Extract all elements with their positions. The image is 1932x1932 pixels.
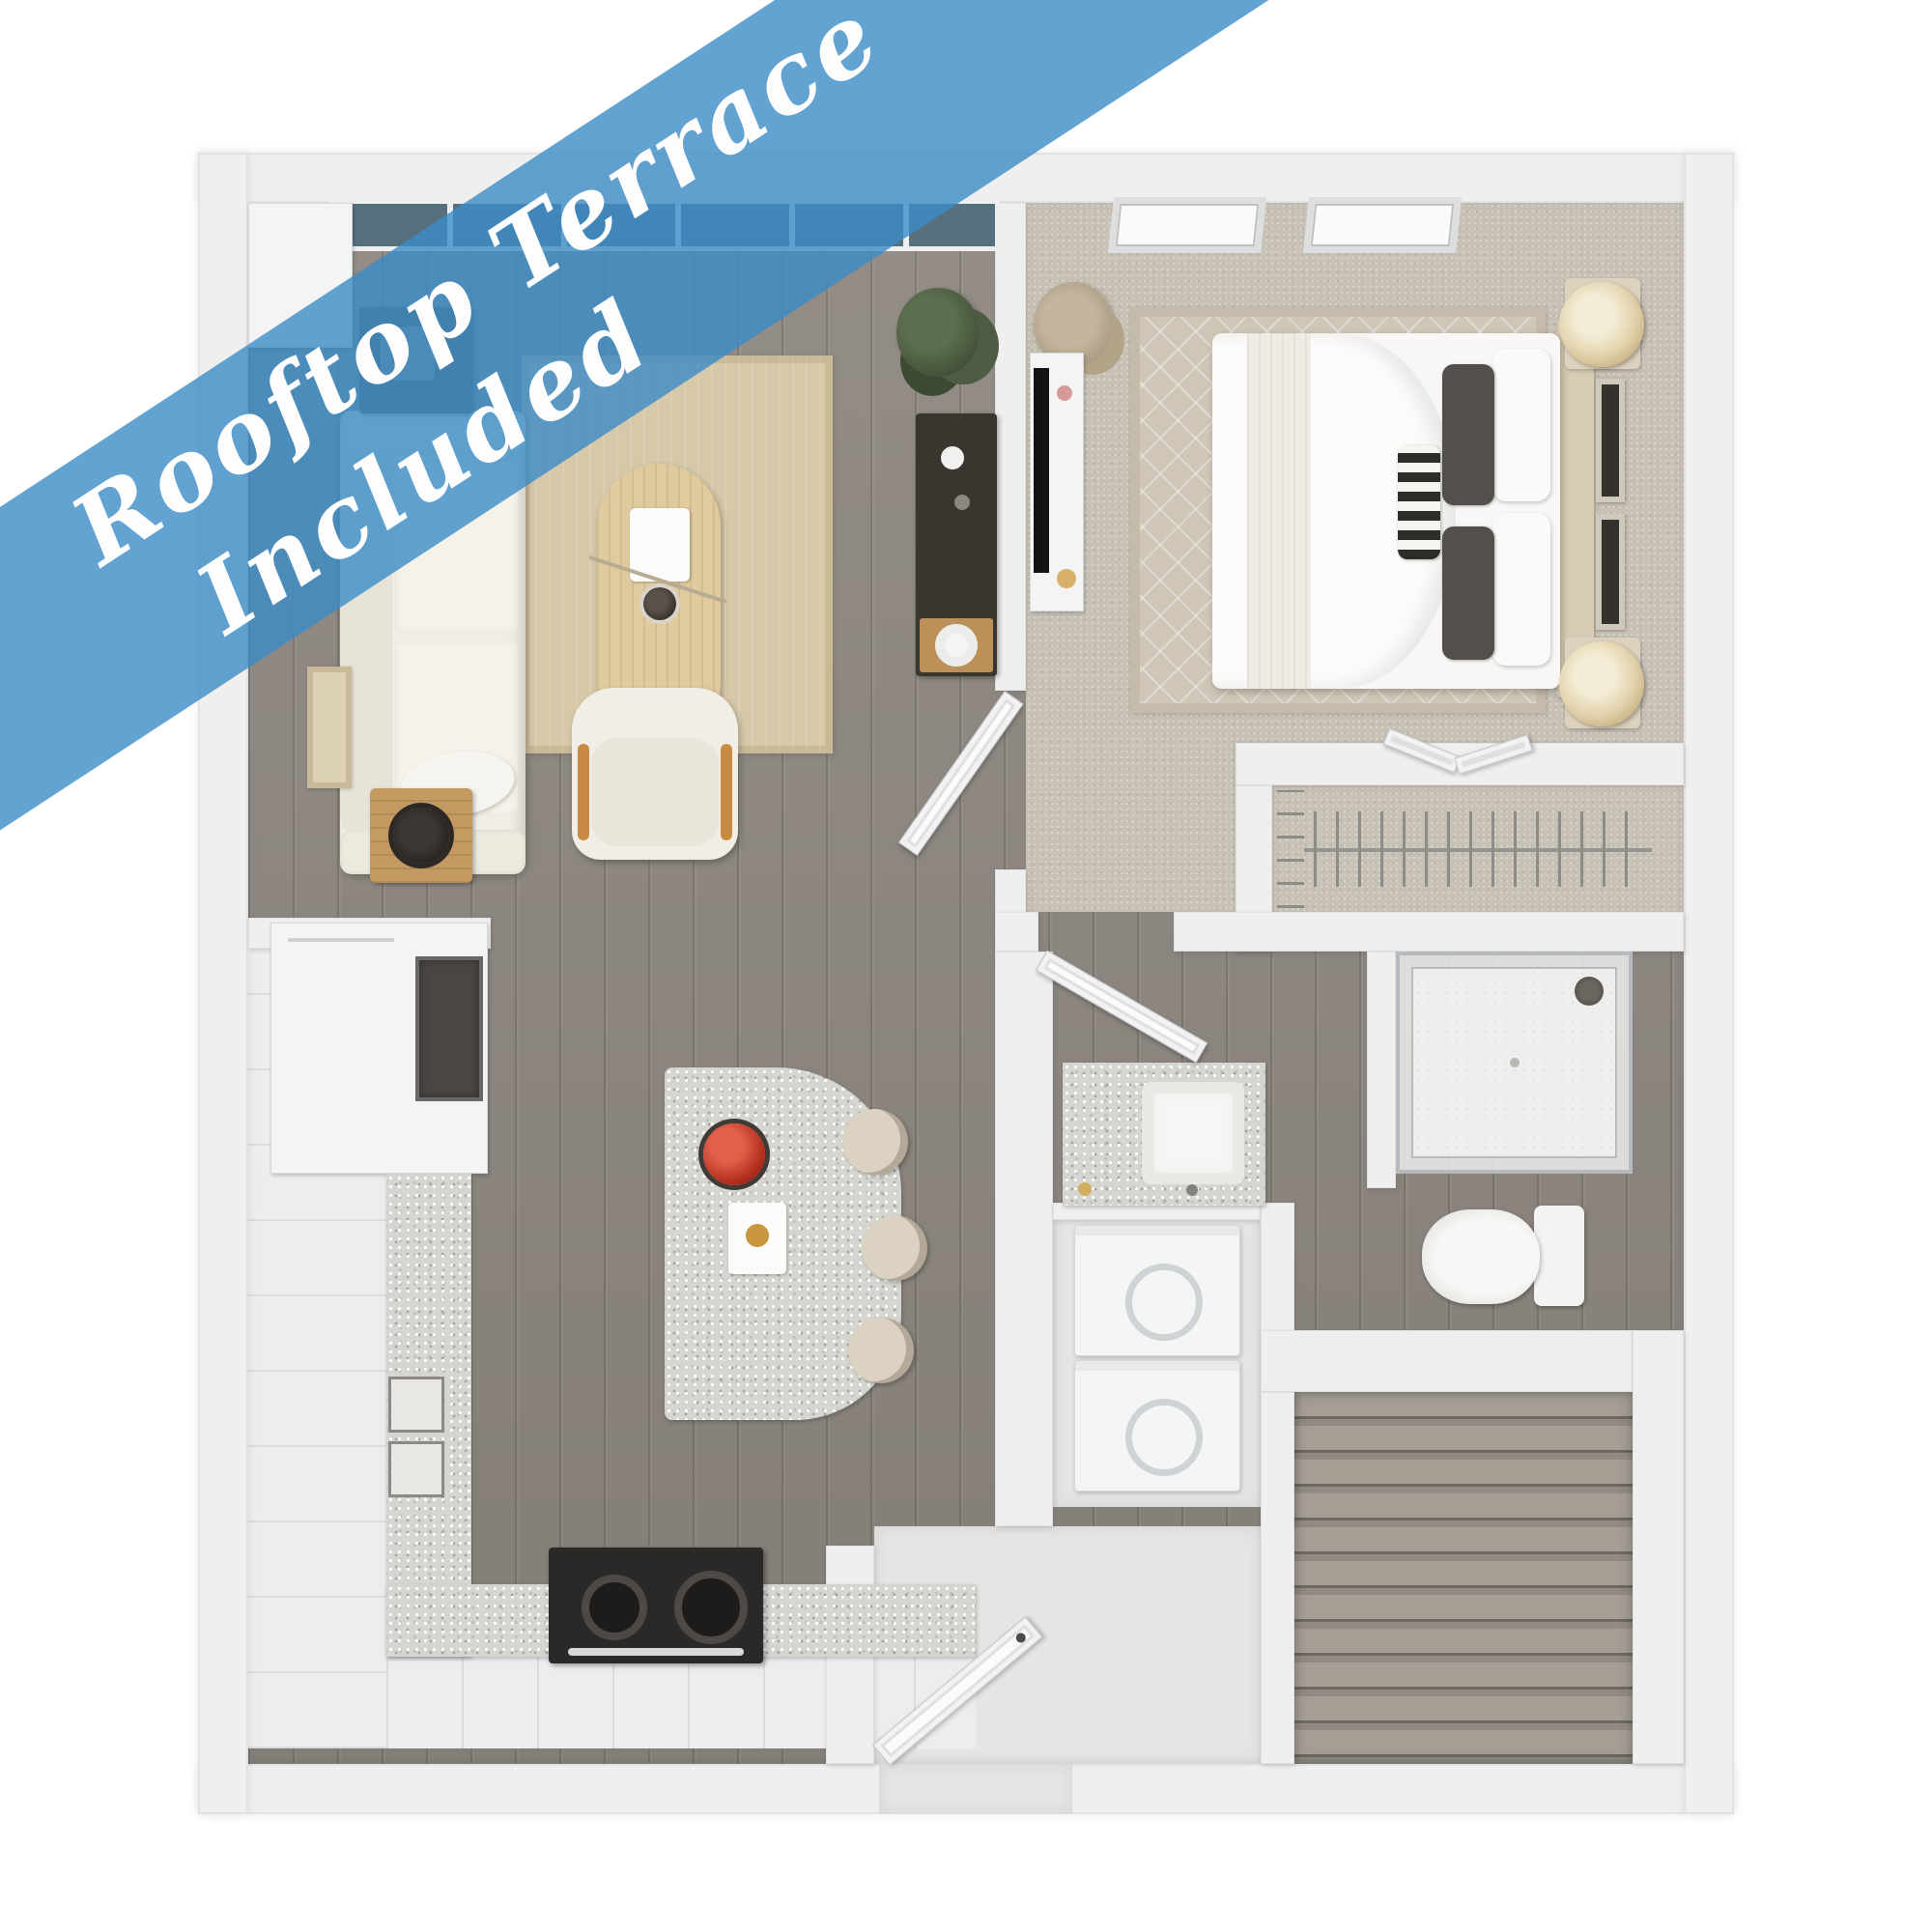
island-stool-1 — [842, 1109, 908, 1175]
closet-hangers-side — [1277, 790, 1304, 908]
wall-art-frame-1 — [1596, 379, 1625, 502]
accent-chair-arm-left — [578, 744, 589, 840]
toilet-tank — [1534, 1206, 1584, 1306]
speaker-bowl — [393, 808, 449, 864]
bathroom-vanity — [1063, 1063, 1265, 1206]
bedroom-window-right — [1303, 197, 1462, 253]
bedroom-window-left — [1108, 197, 1266, 253]
bed-folded-blanket — [1247, 333, 1311, 689]
floor-plan-image: Rooftop Terrace Included — [0, 0, 1932, 1932]
burner-left — [582, 1575, 647, 1640]
wood-side-table — [370, 788, 472, 883]
shower-drain — [1510, 1058, 1520, 1067]
bar-cabinet — [916, 413, 997, 676]
bar-item — [954, 495, 970, 510]
bed-pillow-dark-1 — [1442, 364, 1494, 505]
fruit-bowl-apples — [703, 1123, 765, 1185]
fridge-pantry-unit — [270, 923, 488, 1174]
living-plant — [896, 288, 980, 377]
wall-stairs-top — [1261, 1330, 1633, 1392]
wall-bathroom-top-left — [995, 912, 1038, 952]
washer — [1074, 1225, 1240, 1356]
wall-bathroom-left — [995, 952, 1053, 1526]
shower-head — [1575, 977, 1604, 1006]
range-stove — [549, 1548, 763, 1663]
media-table-top — [381, 327, 435, 381]
lamp-bottom — [1559, 641, 1644, 726]
bed-pillow-white-2 — [1492, 513, 1550, 666]
wall-bathroom-top — [1174, 912, 1684, 952]
staircase — [1294, 1392, 1633, 1764]
island-stool-2 — [862, 1215, 927, 1281]
lamp-top — [1559, 282, 1644, 367]
wall-art-frame-2 — [1596, 514, 1625, 630]
toilet-bowl — [1422, 1209, 1540, 1304]
living-room-window-band — [328, 199, 1000, 251]
shower — [1396, 952, 1633, 1174]
media-side-table — [359, 307, 473, 413]
dresser-decor — [1057, 569, 1076, 588]
open-shelf-1 — [388, 1377, 444, 1433]
fridge-handle — [288, 938, 394, 942]
coffee-cup — [941, 446, 964, 469]
bed-pillow-white-1 — [1492, 349, 1550, 501]
wall-oven — [415, 956, 483, 1101]
vanity-soap — [1078, 1182, 1092, 1196]
accent-chair-cushion — [591, 738, 719, 846]
bed-pillow-dark-2 — [1442, 526, 1494, 660]
island-tray — [728, 1203, 786, 1274]
accent-chair — [572, 688, 738, 860]
outer-wall-top — [198, 153, 1734, 203]
bedroom-carpet-entry — [1026, 743, 1236, 912]
entry-door-handle — [1014, 1631, 1028, 1644]
bed — [1212, 333, 1560, 689]
table-vase — [643, 587, 676, 620]
leaning-art-frame — [307, 667, 352, 788]
dryer — [1074, 1360, 1240, 1492]
closet-hangers — [1314, 811, 1642, 887]
burner-right — [674, 1571, 748, 1644]
tv-screen — [1034, 368, 1049, 573]
sofa-arm-top — [340, 411, 526, 455]
wall-stairs-right — [1633, 1330, 1684, 1764]
wall-living-bedroom — [995, 203, 1026, 691]
oven-handle — [568, 1648, 744, 1656]
wall-stairs-left — [1261, 1392, 1294, 1764]
sink-faucet — [1186, 1184, 1198, 1196]
accent-chair-arm-right — [721, 744, 732, 840]
wall-living-bedroom-stub — [995, 869, 1026, 916]
sofa-seat-cushion-1 — [394, 459, 518, 633]
entry-closet-box — [248, 203, 353, 348]
wall-shower-partition — [1367, 952, 1396, 1188]
outer-wall-right — [1684, 153, 1734, 1814]
paper-roll — [935, 624, 978, 667]
dresser-decor-2 — [1057, 385, 1072, 401]
vanity-sink — [1142, 1082, 1244, 1184]
open-shelf-2 — [388, 1441, 444, 1497]
tray-dish — [746, 1224, 769, 1247]
bed-pillow-striped — [1398, 445, 1440, 559]
outer-wall-left — [198, 153, 248, 1814]
bedroom-dresser — [1030, 353, 1084, 611]
entry-door-threshold — [879, 1764, 1072, 1814]
island-stool-3 — [848, 1318, 914, 1383]
